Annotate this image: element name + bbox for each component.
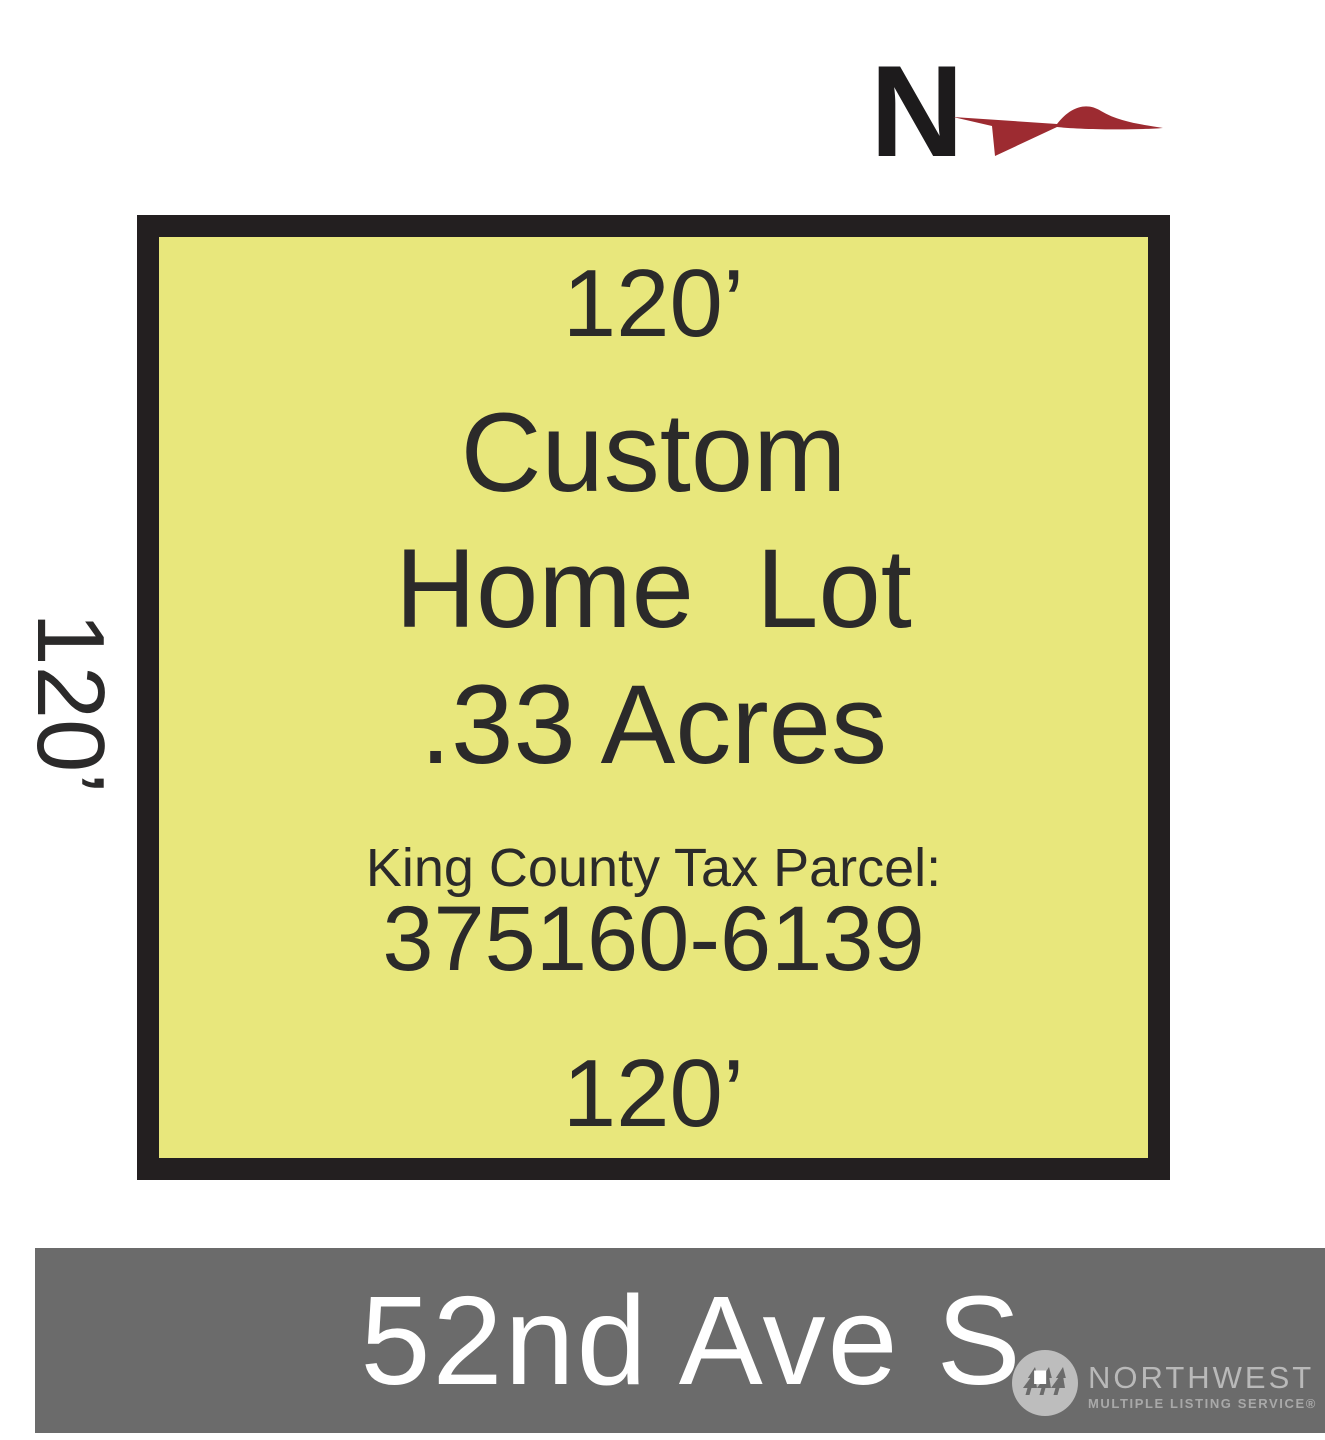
lot-acreage: .33 Acres [159, 661, 1148, 790]
lot-parcel: 120’ Custom Home Lot .33 Acres King Coun… [137, 215, 1170, 1180]
north-arrow-icon [915, 97, 1170, 162]
lot-title-line1: Custom [159, 389, 1148, 518]
street-name: 52nd Ave S. [35, 1278, 1325, 1404]
parcel-number: 375160-6139 [159, 887, 1148, 993]
dimension-bottom: 120’ [159, 1039, 1148, 1149]
lot-plat-diagram: N 120’ 120’ Custom Home Lot .33 Acres Ki… [0, 0, 1325, 1440]
lot-title-line2: Home Lot [159, 525, 1148, 654]
street-bar: 52nd Ave S. NORTHWEST MULTIPLE LISTING S… [35, 1248, 1325, 1433]
dimension-left: 120’ [15, 611, 125, 795]
dimension-top: 120’ [159, 249, 1148, 359]
